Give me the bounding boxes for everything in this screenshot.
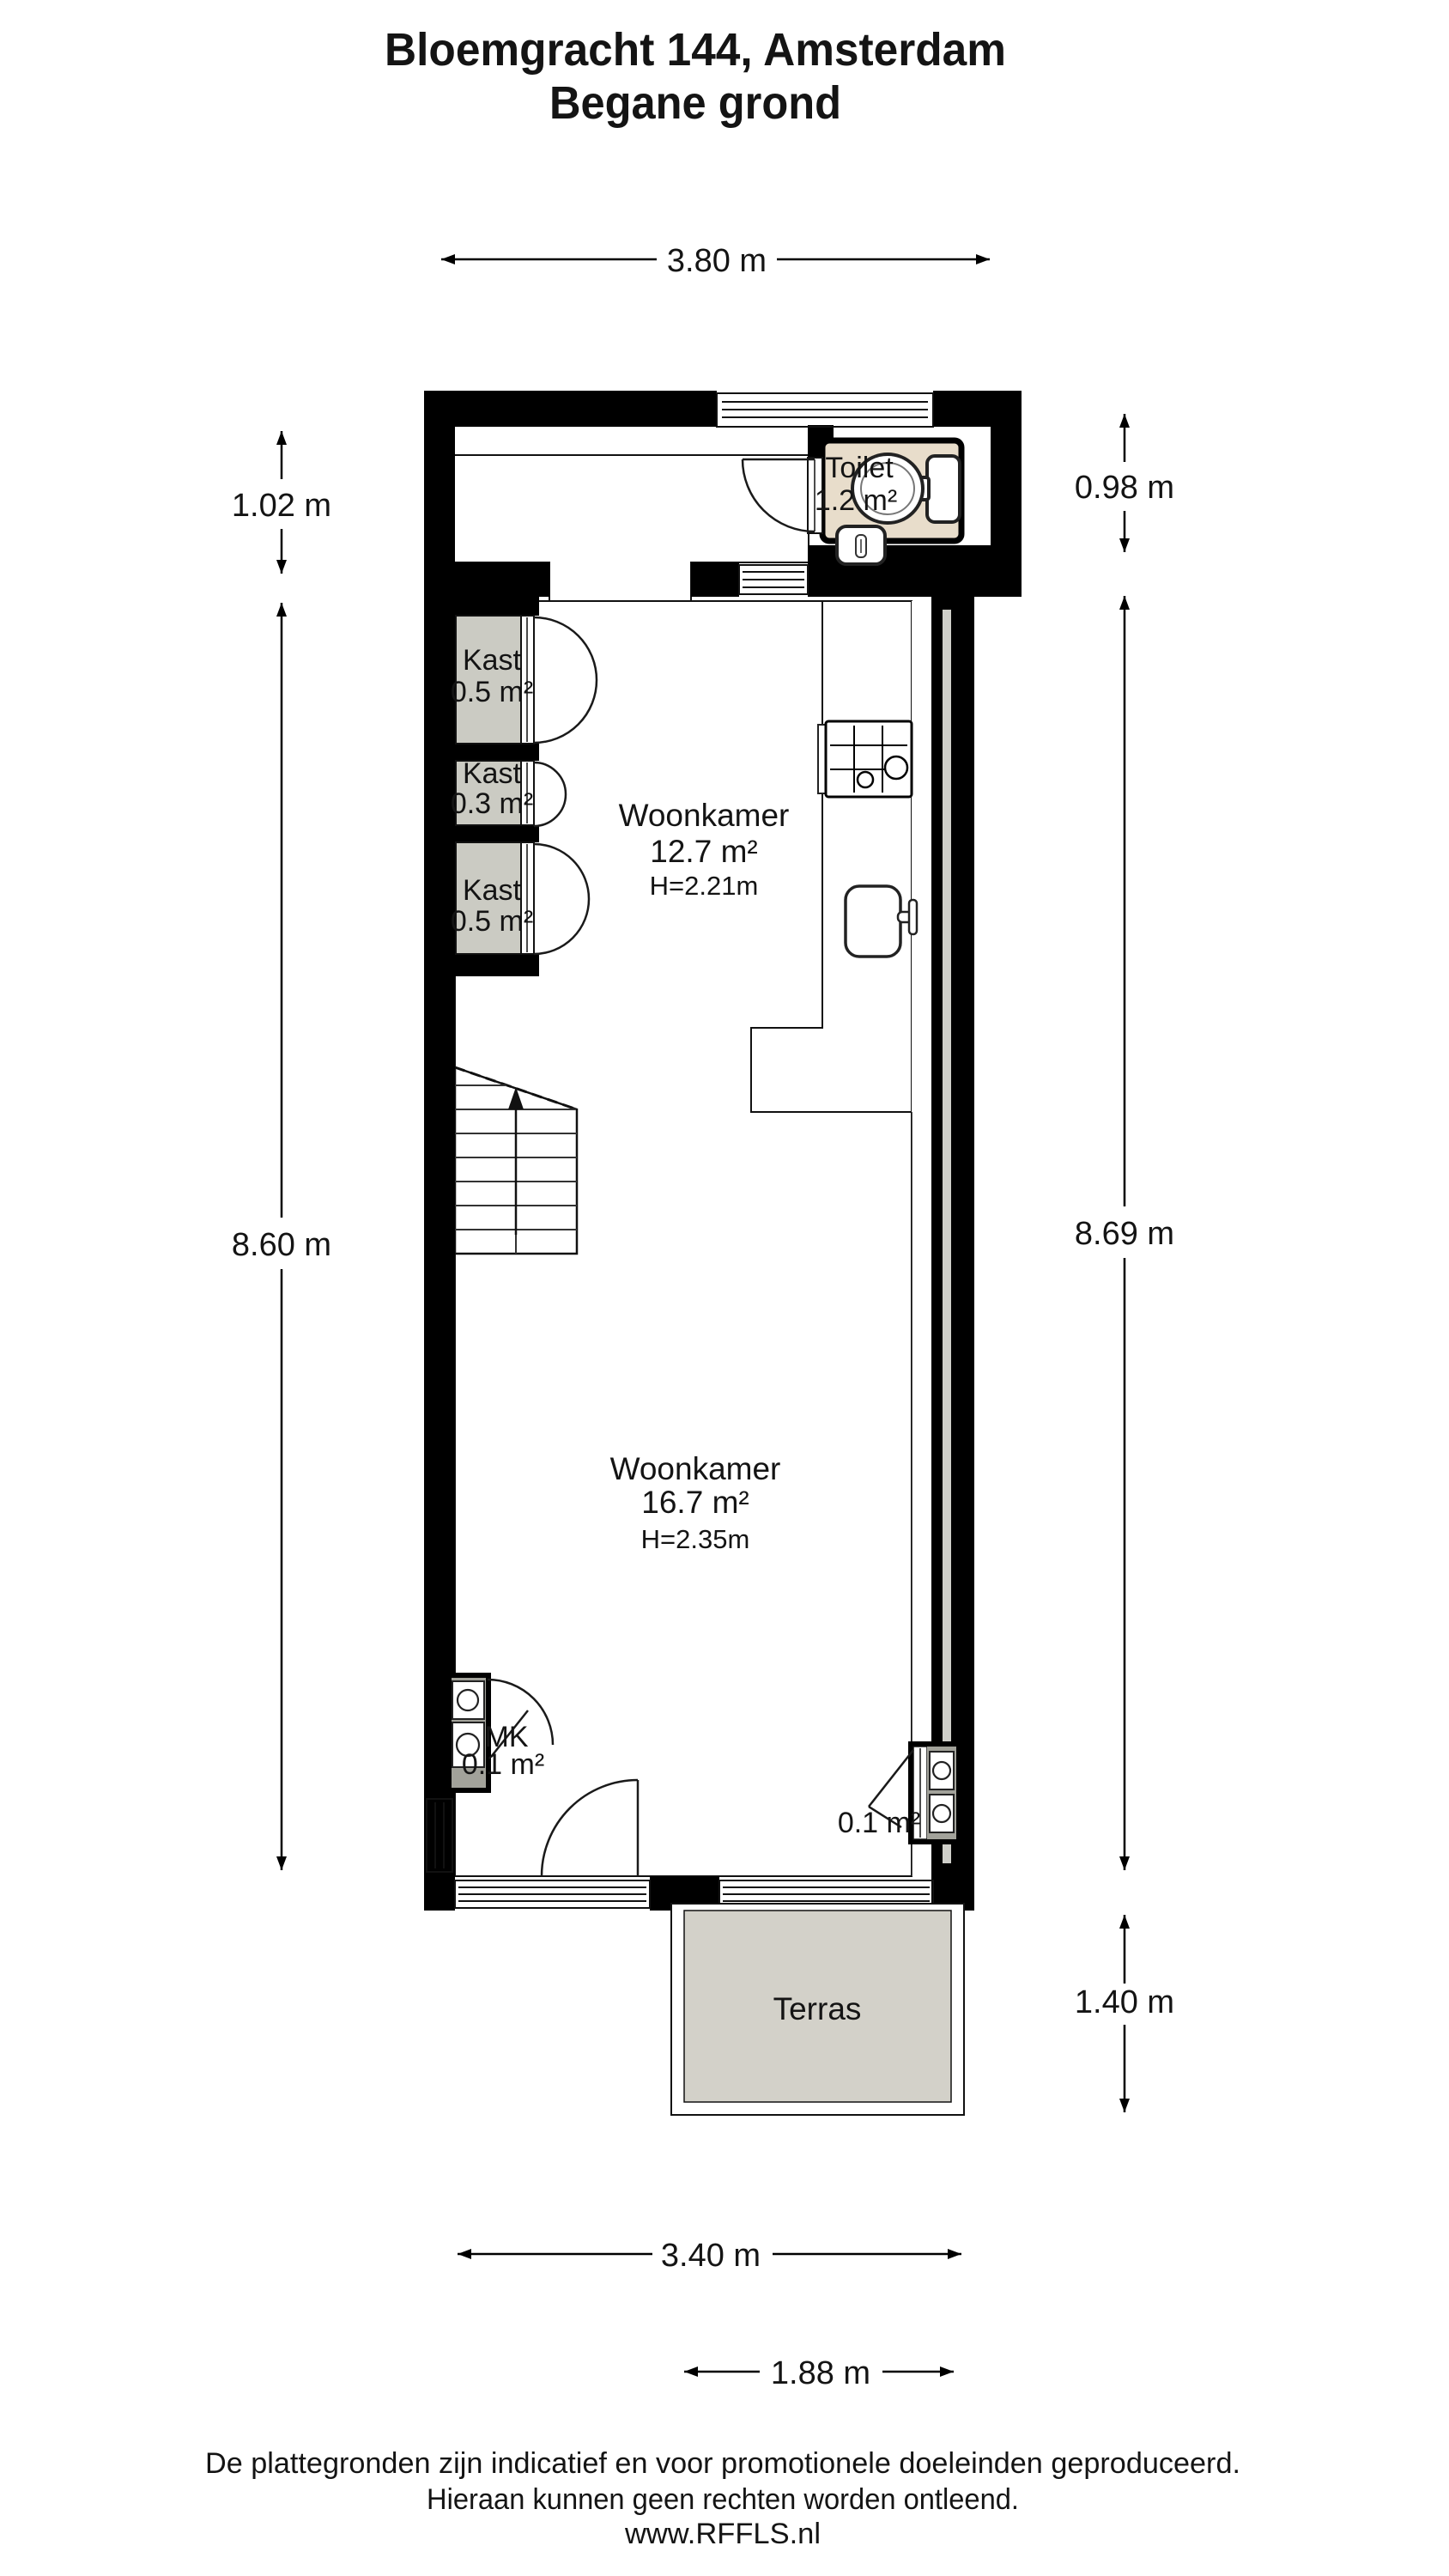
dim-top: 3.80 m	[441, 243, 990, 279]
dim-right-top: 0.98 m	[1075, 414, 1174, 552]
dim-left-top-label: 1.02 m	[232, 488, 331, 524]
hand-basin-icon	[837, 526, 885, 564]
wall-right-main	[931, 597, 974, 1911]
toilet-label: Toilet	[825, 452, 894, 484]
woonkamer-front-height-label: H=2.21m	[650, 871, 759, 901]
kast-3-label: Kast	[463, 874, 522, 907]
kast-1-area-label: 0.5 m²	[451, 676, 533, 708]
dim-right-main: 8.69 m	[1075, 596, 1174, 1870]
staircase	[455, 1067, 577, 1254]
terras-label: Terras	[773, 1991, 862, 2026]
room-labels: Woonkamer 12.7 m² H=2.21m Woonkamer 16.7…	[610, 798, 790, 1554]
dim-left-top: 1.02 m	[232, 431, 331, 574]
dim-top-label: 3.80 m	[667, 243, 767, 279]
window-hall-panel	[739, 565, 808, 594]
dim-right-top-label: 0.98 m	[1075, 470, 1174, 506]
floorplan-canvas: Bloemgracht 144, Amsterdam Begane grond	[0, 0, 1449, 2576]
kast-3-area-label: 0.5 m²	[451, 905, 533, 938]
woonkamer-back-area-label: 16.7 m²	[641, 1485, 749, 1520]
kast-2-label: Kast	[463, 757, 522, 790]
footer-disclaimer: De plattegronden zijn indicatief en voor…	[205, 2447, 1240, 2550]
dim-bottom-terras: 1.88 m	[684, 2355, 954, 2391]
woonkamer-front-label: Woonkamer	[619, 798, 790, 833]
terras: Terras	[671, 1904, 964, 2115]
kast-2-area-label: 0.3 m²	[451, 787, 533, 820]
footer-line-2: Hieraan kunnen geen rechten worden ontle…	[427, 2483, 1019, 2516]
wall-hall-band-mid	[691, 562, 739, 597]
dim-right-bottom-label: 1.40 m	[1075, 1984, 1174, 2020]
kitchen-niche	[751, 601, 912, 1112]
woonkamer-front-area-label: 12.7 m²	[650, 834, 757, 869]
woonkamer-back-label: Woonkamer	[610, 1451, 781, 1486]
mk-area-label: 0.1 m²	[462, 1748, 544, 1781]
dim-left-main-label: 8.60 m	[232, 1227, 331, 1263]
footer-website: www.RFFLS.nl	[624, 2518, 821, 2550]
kast-closets: Kast 0.5 m² Kast 0.3 m² Kast 0.5 m²	[451, 616, 597, 954]
window-top-facade	[717, 393, 933, 427]
title-block: Bloemgracht 144, Amsterdam Begane grond	[385, 24, 1006, 129]
woonkamer-back-height-label: H=2.35m	[641, 1524, 750, 1554]
front-door	[542, 1780, 638, 1876]
page-title: Bloemgracht 144, Amsterdam	[385, 24, 1006, 76]
kast-2: Kast 0.3 m²	[451, 757, 566, 826]
dim-bottom-terras-label: 1.88 m	[771, 2355, 870, 2391]
meter-closet-right-area-label: 0.1 m²	[838, 1807, 920, 1839]
dim-left-main: 8.60 m	[232, 603, 331, 1870]
footer-line-1: De plattegronden zijn indicatief en voor…	[205, 2447, 1240, 2480]
wall-niche-strip	[912, 601, 931, 1876]
wall-top-left	[424, 391, 717, 427]
wall-kast-sep2	[449, 825, 539, 842]
kitchen	[818, 721, 917, 957]
dim-bottom-main-label: 3.40 m	[661, 2238, 761, 2274]
toilet-area-label: 1.2 m²	[815, 484, 897, 517]
dim-right-main-label: 8.69 m	[1075, 1216, 1174, 1252]
wall-right-core	[943, 610, 951, 1863]
dim-right-bottom: 1.40 m	[1075, 1915, 1174, 2112]
kast-1-label: Kast	[463, 644, 522, 677]
wall-bottom-left-corner	[424, 1876, 455, 1911]
page-subtitle: Begane grond	[549, 77, 841, 129]
sink-icon	[846, 886, 917, 957]
window-bottom-left	[455, 1880, 650, 1908]
wall-hall-band-left	[455, 562, 549, 597]
wall-kast-cap	[449, 597, 539, 616]
kast-3: Kast 0.5 m²	[451, 842, 589, 954]
kast-1: Kast 0.5 m²	[451, 616, 597, 744]
meter-closet-right: 0.1 m²	[838, 1741, 961, 1844]
wall-kast-bottom	[449, 954, 539, 976]
toilet-door	[743, 458, 822, 533]
dim-bottom-main: 3.40 m	[458, 2238, 961, 2274]
mk-closet: MK 0.1 m²	[446, 1673, 553, 1793]
stove-icon	[818, 721, 912, 797]
